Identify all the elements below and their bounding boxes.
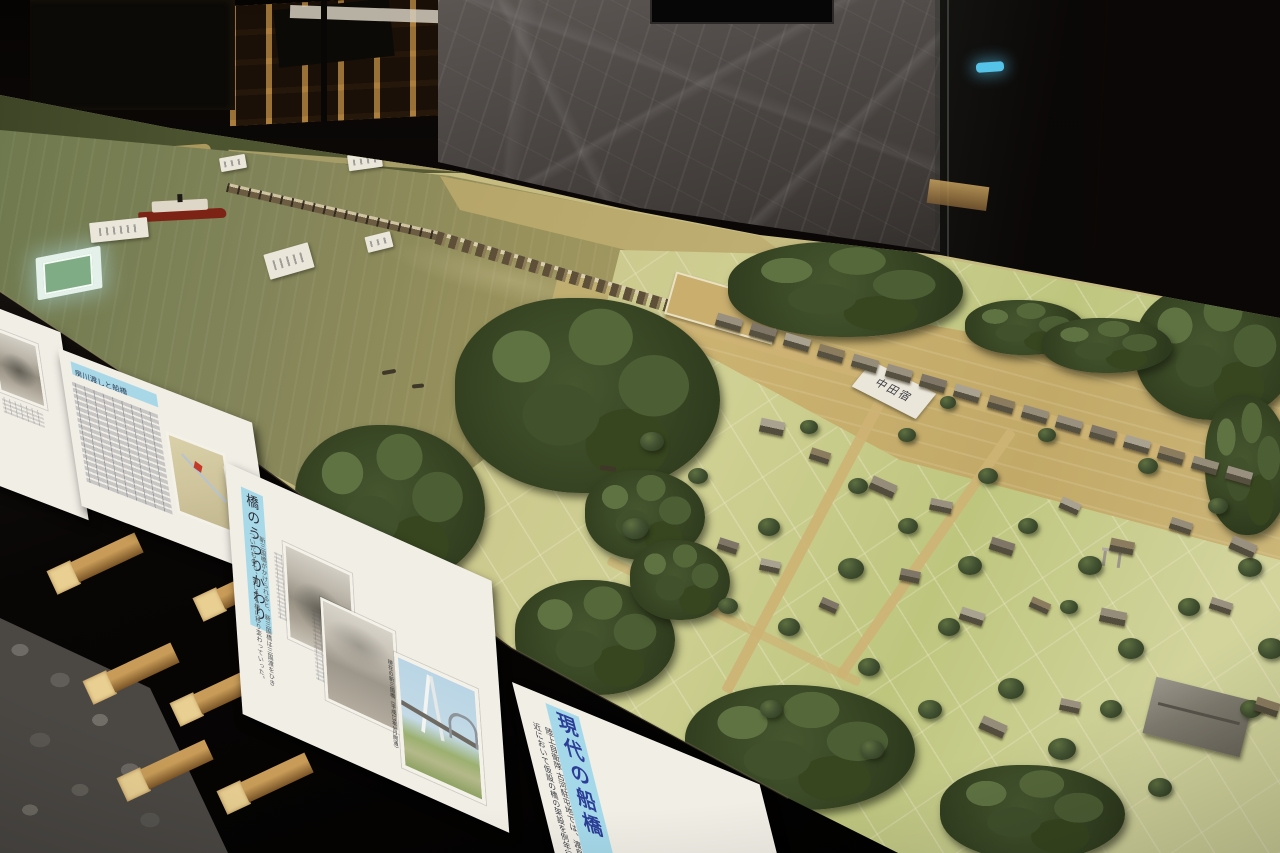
wood-beam-shaft: [70, 532, 144, 582]
wall-monitor: [650, 0, 834, 24]
tree: [978, 468, 998, 484]
street-house: [987, 394, 1016, 414]
vertical-pole: [321, 0, 327, 122]
farm-house: [868, 475, 897, 498]
river-label-tag: [364, 231, 393, 253]
street-house: [953, 384, 982, 404]
tree: [1060, 600, 1078, 614]
tree: [1100, 700, 1122, 718]
tree: [848, 478, 868, 494]
tree: [938, 618, 960, 636]
forest-clump: [940, 765, 1125, 853]
tree: [860, 740, 884, 759]
tree: [778, 618, 800, 636]
tree: [800, 420, 818, 434]
tree: [918, 700, 942, 719]
street-house: [1157, 445, 1186, 465]
bridge-pylon: [421, 674, 430, 733]
wood-beam: [116, 736, 216, 804]
tree: [718, 598, 738, 614]
farm-house: [1029, 596, 1052, 614]
farm-house: [819, 597, 840, 614]
street-house: [817, 343, 846, 363]
farm-house: [899, 568, 921, 584]
wood-beam-shaft: [106, 642, 180, 692]
tree: [958, 556, 982, 575]
small-boat: [382, 369, 396, 375]
tree: [858, 658, 880, 676]
map-red-marker: [194, 461, 203, 473]
street-house: [1089, 425, 1118, 445]
forest-clump: [455, 298, 720, 493]
map-river-line: [181, 453, 227, 503]
wood-beam: [46, 529, 146, 597]
farm-house: [1209, 597, 1234, 615]
farm-house: [1228, 535, 1257, 558]
farm-house: [1169, 517, 1194, 535]
glass-edge-line: [947, 0, 949, 265]
tree: [758, 518, 780, 536]
farm-house: [959, 607, 986, 627]
forest-clump: [1042, 318, 1172, 373]
tree: [1018, 518, 1038, 534]
tree: [1258, 638, 1280, 659]
tree: [1078, 556, 1102, 575]
farm-house: [1099, 607, 1127, 626]
wood-beam-shaft: [140, 739, 214, 789]
forest-clump: [728, 242, 963, 337]
museum-exhibit-photo: 中田宿 房川渡しと船橋 橋のうつりかわり 新三国橋がかけられると、新三: [0, 0, 1280, 853]
tree: [898, 428, 916, 442]
tree: [838, 558, 864, 579]
tree: [688, 468, 708, 484]
river-label-tag: [347, 151, 383, 172]
wood-beam: [82, 639, 182, 707]
street-house: [783, 333, 812, 353]
farm-house: [978, 715, 1007, 738]
farm-house: [717, 537, 740, 555]
farm-house: [1059, 698, 1081, 714]
farm-house: [989, 537, 1016, 557]
street-house: [919, 374, 948, 394]
street-house: [1021, 404, 1050, 424]
tree: [1048, 738, 1076, 760]
tree: [1208, 498, 1228, 514]
bridge-arch: [447, 708, 478, 750]
street-house: [851, 353, 880, 373]
tree: [1118, 638, 1144, 659]
farm-house: [929, 498, 953, 514]
farm-house: [759, 558, 781, 574]
street-house: [1123, 435, 1152, 455]
tree: [1178, 598, 1200, 616]
tree: [998, 678, 1024, 699]
wall-pillar: [1080, 0, 1280, 315]
tree: [760, 700, 782, 718]
farm-house: [1058, 496, 1081, 515]
tree: [640, 432, 664, 451]
tree: [1238, 558, 1262, 577]
blue-indicator-glow: [976, 61, 1005, 73]
river-label-text-marks: [369, 237, 388, 248]
farm-house: [759, 418, 785, 437]
wood-beam: [216, 749, 316, 817]
farm-house: [809, 447, 832, 465]
tree: [940, 396, 956, 409]
tree: [898, 518, 918, 534]
street-house: [715, 313, 744, 333]
forest-clump: [630, 540, 730, 620]
farm-house: [1109, 538, 1135, 556]
street-house: [1055, 415, 1084, 435]
tree: [622, 518, 648, 539]
tree: [1038, 428, 1056, 442]
tree: [1148, 778, 1172, 797]
tree: [1138, 458, 1158, 474]
small-boat: [412, 383, 424, 388]
wood-beam-shaft: [240, 752, 314, 802]
river-label-text-marks: [353, 156, 377, 166]
street-house: [885, 364, 914, 384]
bridge-pylon: [429, 676, 445, 742]
panel3-photo-modern-bridge: [394, 652, 486, 805]
